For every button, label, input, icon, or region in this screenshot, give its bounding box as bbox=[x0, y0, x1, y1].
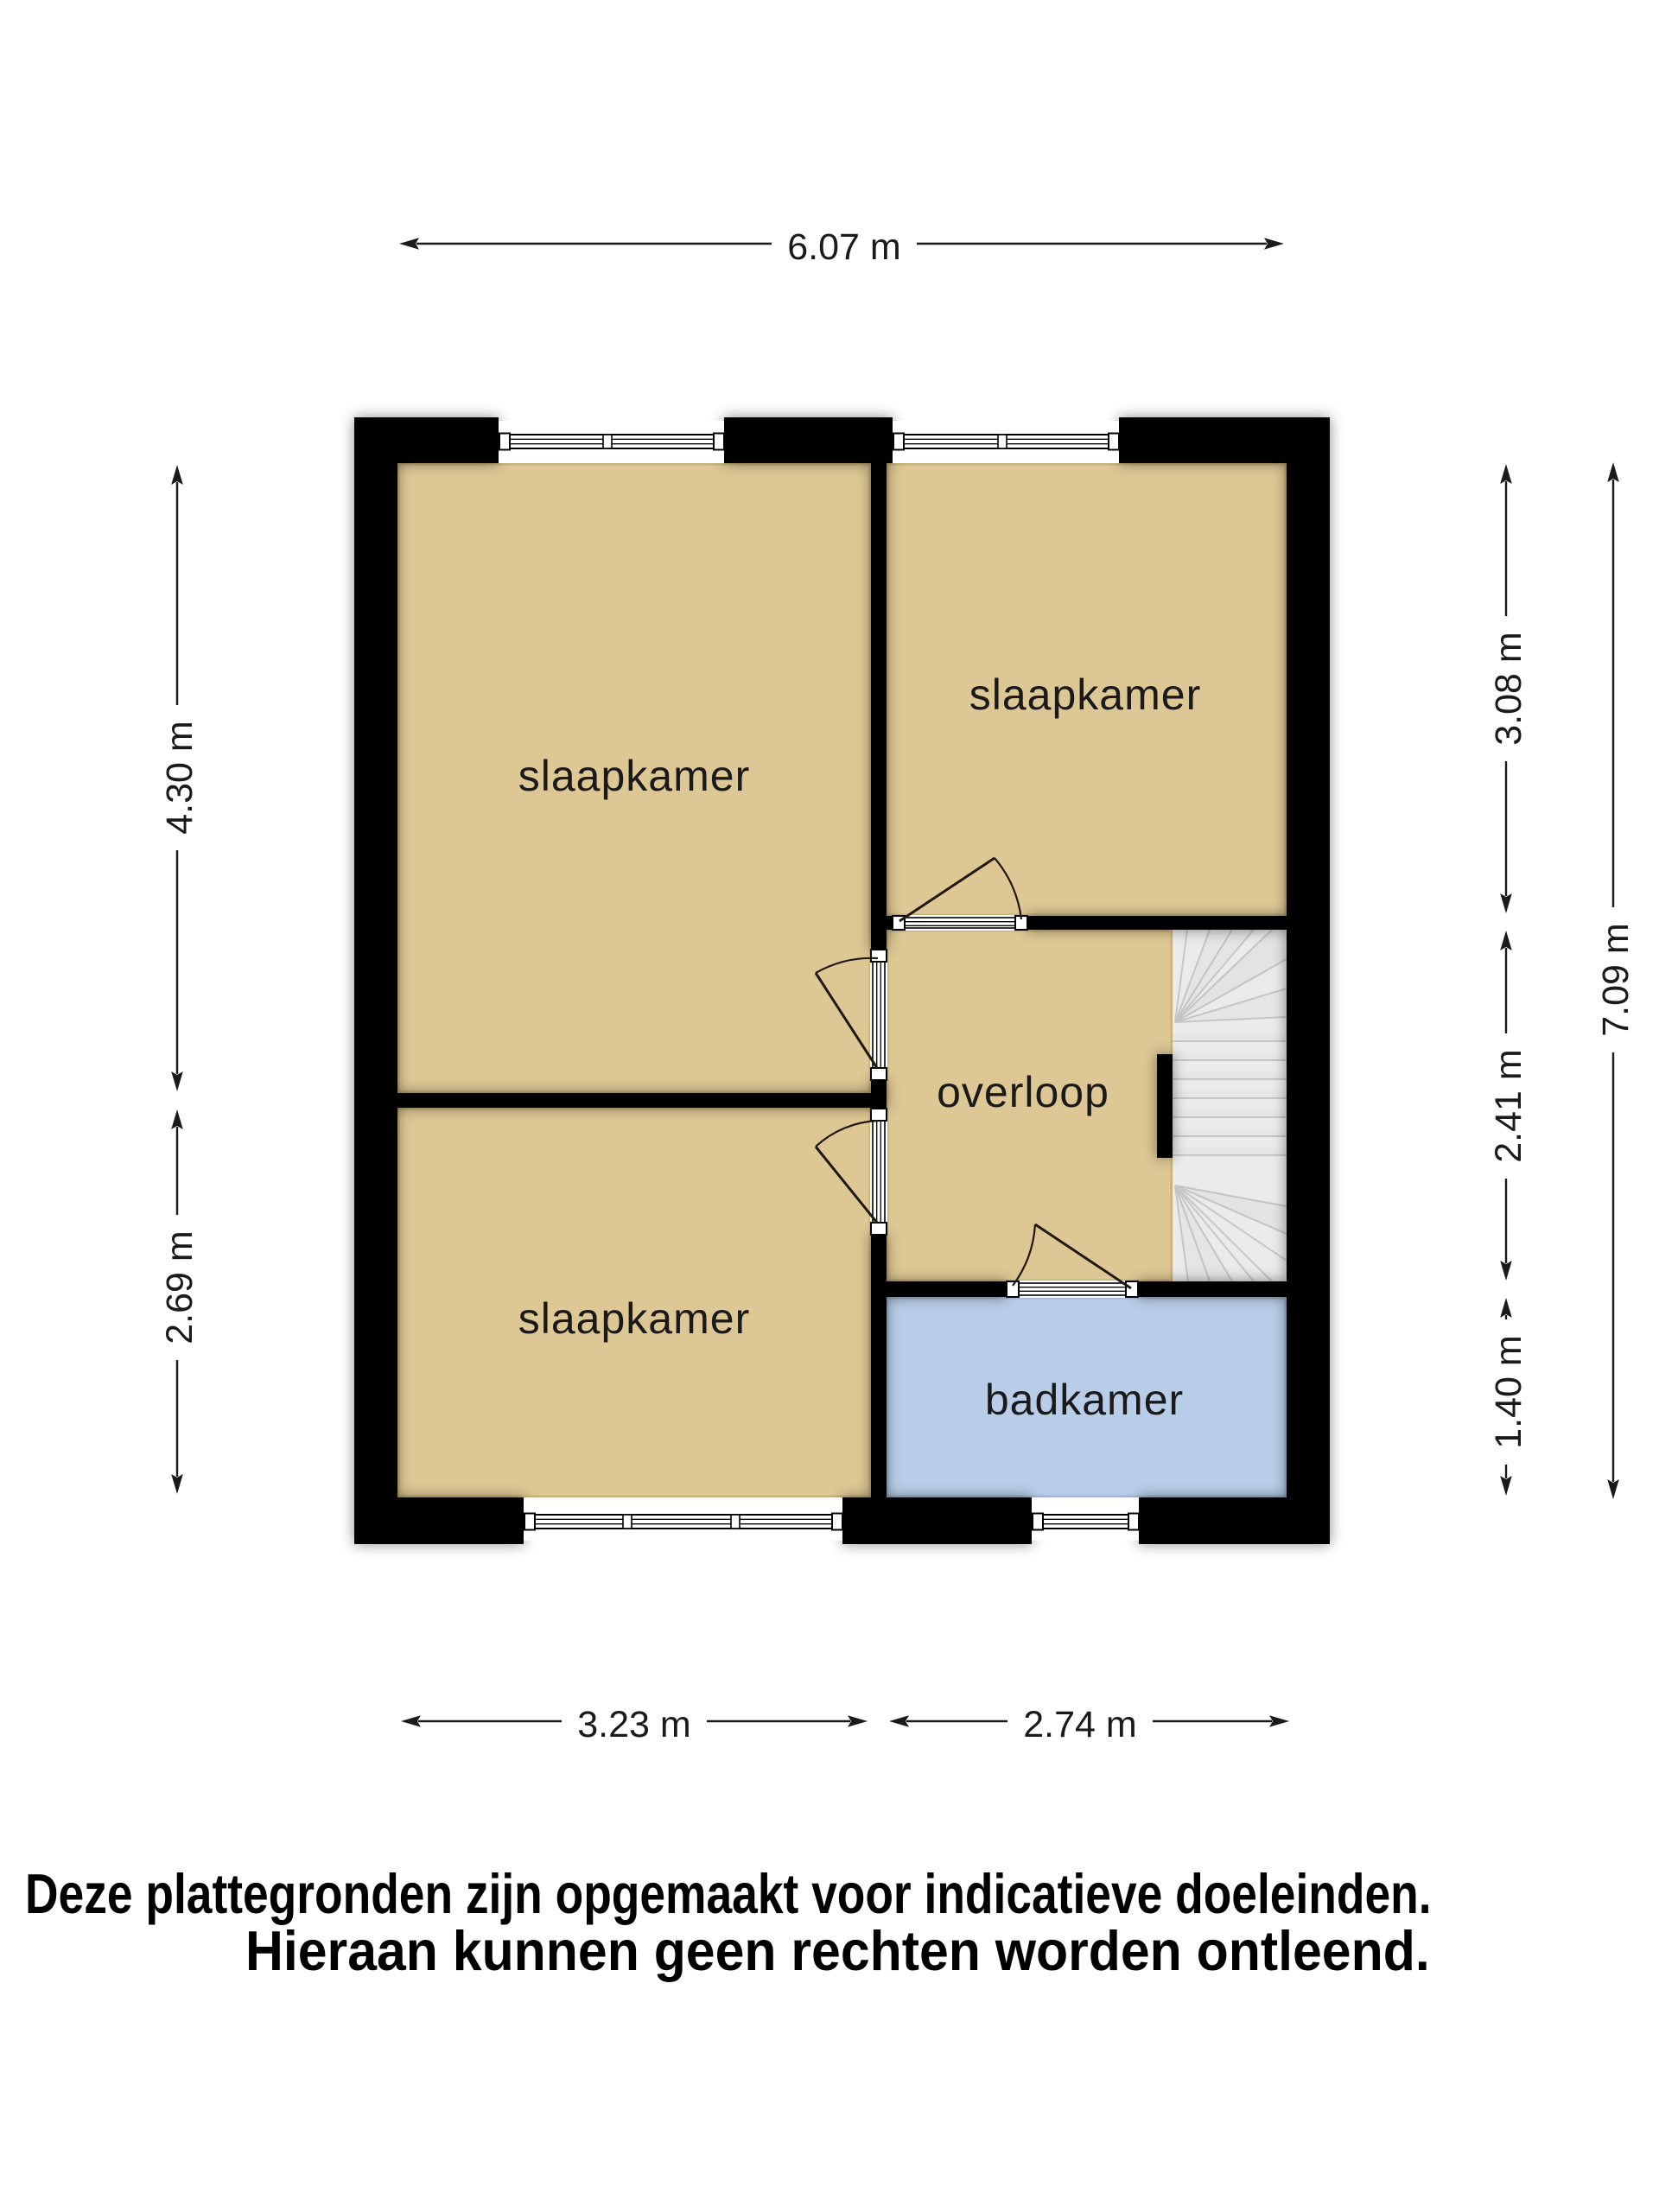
svg-text:Deze plattegronden zijn opgema: Deze plattegronden zijn opgemaakt voor i… bbox=[25, 1862, 1432, 1925]
svg-text:2.69 m: 2.69 m bbox=[159, 1230, 200, 1344]
svg-text:4.30 m: 4.30 m bbox=[159, 721, 200, 834]
svg-text:badkamer: badkamer bbox=[985, 1376, 1184, 1424]
svg-text:1.40 m: 1.40 m bbox=[1488, 1335, 1529, 1448]
svg-text:slaapkamer: slaapkamer bbox=[518, 1294, 750, 1343]
svg-text:3.23 m: 3.23 m bbox=[577, 1704, 690, 1745]
svg-text:2.41 m: 2.41 m bbox=[1488, 1049, 1529, 1162]
svg-text:6.07 m: 6.07 m bbox=[787, 226, 900, 268]
svg-text:overloop: overloop bbox=[937, 1068, 1109, 1116]
svg-text:3.08 m: 3.08 m bbox=[1488, 632, 1529, 745]
svg-text:Hieraan kunnen geen rechten wo: Hieraan kunnen geen rechten worden ontle… bbox=[245, 1920, 1430, 1982]
svg-text:7.09 m: 7.09 m bbox=[1595, 923, 1637, 1036]
svg-text:2.74 m: 2.74 m bbox=[1023, 1704, 1136, 1745]
svg-text:slaapkamer: slaapkamer bbox=[969, 671, 1201, 719]
svg-text:slaapkamer: slaapkamer bbox=[518, 752, 750, 800]
